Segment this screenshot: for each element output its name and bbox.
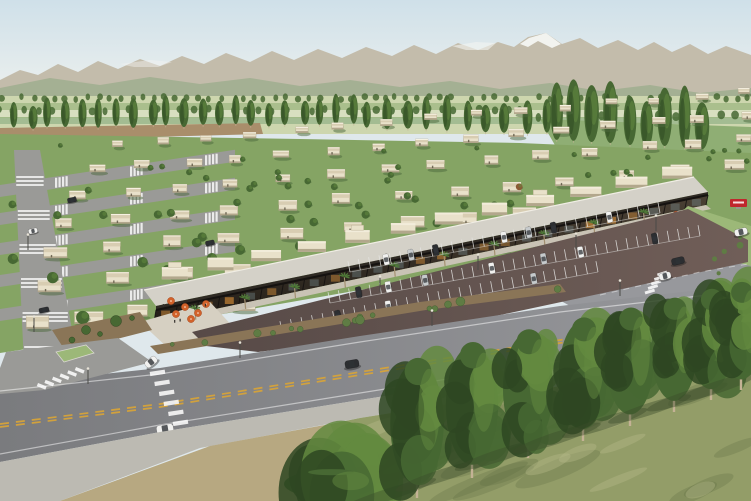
crosswalk-bar	[150, 372, 165, 374]
crosswalk-bar	[141, 289, 143, 299]
island-tree	[69, 337, 75, 343]
crosswalk-bar	[130, 291, 132, 301]
orchard-tree	[295, 96, 301, 103]
villa	[103, 242, 123, 256]
villa	[218, 233, 243, 246]
villa	[725, 160, 748, 173]
crosswalk-bar	[164, 402, 179, 404]
orange-umbrella	[172, 310, 179, 317]
villa	[126, 188, 143, 200]
crosswalk-bar	[62, 235, 64, 245]
villa	[223, 180, 240, 191]
orchard-tree	[119, 95, 124, 102]
orchard-tree	[536, 113, 541, 122]
villa	[451, 187, 471, 200]
orchard-tree	[714, 93, 721, 100]
crosswalk-bar	[212, 154, 214, 164]
orchard-tree	[672, 112, 680, 121]
lit-storefront	[225, 297, 234, 304]
villa	[173, 184, 190, 196]
crosswalk-bar	[205, 155, 207, 165]
orchard-tree	[469, 96, 474, 103]
crosswalk-bar	[18, 210, 50, 212]
crosswalk-bar	[19, 244, 55, 246]
crosswalk-bar	[18, 218, 50, 220]
villa	[44, 247, 70, 261]
crosswalk-bar	[55, 178, 57, 188]
orchard-tree	[252, 94, 257, 101]
crosswalk-bar	[205, 183, 207, 193]
crosswalk-bar	[66, 204, 68, 214]
orchard-tree	[32, 95, 37, 102]
crosswalk-bar	[137, 289, 139, 299]
crosswalk-bar	[216, 154, 218, 164]
orchard-tree	[492, 106, 498, 114]
scene-canvas	[0, 0, 751, 501]
orchard-tree	[481, 94, 486, 101]
crosswalk-bar	[66, 176, 68, 186]
retail-back-unit	[208, 258, 234, 271]
shrub	[456, 297, 465, 306]
orchard-tree	[723, 96, 728, 103]
retail-back-unit	[482, 203, 507, 216]
crosswalk-bar	[212, 212, 214, 222]
orchard-tree	[260, 96, 265, 103]
villa	[327, 169, 348, 181]
crosswalk-bar	[59, 177, 61, 187]
shrub	[202, 339, 208, 345]
orchard-tree	[172, 95, 178, 102]
shrub	[717, 271, 721, 275]
orchard-tree	[536, 93, 542, 100]
orchard-tree	[102, 107, 107, 115]
retail-back-unit	[251, 250, 281, 261]
shrub	[270, 330, 275, 335]
orange-umbrella	[167, 297, 174, 304]
crosswalk-bar	[209, 213, 211, 223]
villa	[279, 200, 300, 214]
crosswalk-bar	[216, 212, 218, 222]
orchard-tree	[731, 111, 739, 120]
orchard-tree	[219, 95, 224, 102]
villa	[90, 165, 108, 176]
orchard-tree	[73, 96, 77, 103]
villa	[163, 235, 183, 250]
villa	[736, 135, 751, 146]
shrub	[737, 242, 744, 249]
crosswalk-bar	[16, 176, 43, 178]
orchard-tree	[392, 93, 397, 100]
storefront-glass	[565, 226, 574, 233]
villa	[427, 160, 448, 172]
crosswalk-bar	[134, 224, 136, 234]
storefront-glass	[671, 203, 680, 210]
villa	[582, 148, 600, 160]
crosswalk-bar	[141, 223, 143, 233]
island-tree	[82, 326, 91, 335]
crosswalk-bar	[134, 256, 136, 266]
crosswalk-bar	[62, 177, 64, 187]
shrub	[254, 329, 262, 337]
orchard-tree	[372, 106, 380, 114]
villa	[463, 135, 481, 146]
shrub	[356, 316, 365, 325]
orchard-tree	[52, 96, 57, 103]
villa	[187, 159, 205, 170]
pedestrian	[180, 319, 181, 322]
orchard-tree	[504, 95, 510, 102]
crosswalk-bar	[137, 223, 139, 233]
villa	[106, 272, 132, 287]
crosswalk-bar	[66, 234, 68, 244]
crosswalk-bar	[209, 155, 211, 165]
villa	[685, 140, 704, 153]
villa	[281, 228, 307, 243]
retail-back-unit	[616, 177, 648, 188]
pedestrian	[163, 304, 164, 307]
orchard-tree	[283, 93, 288, 100]
villa	[553, 127, 572, 137]
orchard-tree	[310, 108, 315, 116]
crosswalk-bar	[16, 180, 43, 182]
crosswalk-bar	[59, 235, 61, 245]
orchard-tree	[206, 96, 211, 103]
crosswalk-bar	[168, 412, 183, 414]
villa	[55, 218, 74, 231]
orchard-tree	[195, 95, 201, 102]
island-tree	[111, 316, 122, 327]
crosswalk-bar	[209, 183, 211, 193]
crosswalk-bar	[216, 244, 218, 254]
crosswalk-bar	[62, 205, 64, 215]
island-tree	[98, 332, 103, 337]
retail-back-unit	[298, 241, 326, 252]
shrub	[712, 256, 717, 261]
orchard-tree	[307, 95, 311, 102]
villa	[273, 151, 292, 161]
crosswalk-bar	[159, 392, 174, 394]
shrub	[342, 319, 350, 327]
orchard-tree	[362, 93, 368, 100]
orchard-tree	[86, 93, 90, 100]
pedestrian	[205, 304, 206, 307]
orange-umbrella	[194, 309, 201, 316]
villa	[738, 88, 751, 97]
orchard-tree	[735, 96, 740, 103]
crosswalk-bar	[173, 422, 188, 424]
orchard-tree	[403, 94, 408, 101]
storefront-glass	[310, 279, 319, 286]
villa	[509, 129, 527, 140]
pedestrian	[196, 306, 197, 309]
shrub	[170, 342, 174, 346]
villa	[600, 121, 618, 132]
crosswalk-bar	[62, 267, 64, 277]
orchard-tree	[273, 94, 278, 101]
retail-back-unit	[435, 212, 463, 224]
aerial-rendering	[0, 0, 751, 501]
villa	[220, 205, 241, 218]
storefront-glass	[692, 199, 701, 206]
sign-base	[736, 207, 741, 209]
lit-storefront	[331, 275, 340, 282]
shrub	[554, 286, 561, 293]
sign-text-bar	[733, 202, 744, 204]
pedestrian	[174, 320, 175, 323]
orchard-tree	[717, 110, 725, 119]
orchard-tree	[414, 95, 419, 102]
crosswalk-bar	[134, 290, 136, 300]
retail-back-unit	[570, 187, 601, 197]
villa	[111, 214, 133, 227]
crosswalk-bar	[16, 184, 43, 186]
shrub	[722, 249, 727, 254]
shrub	[444, 301, 451, 308]
crosswalk-bar	[216, 182, 218, 192]
villa	[643, 141, 660, 153]
villa	[532, 150, 551, 163]
island-tree	[130, 316, 135, 321]
shrub	[289, 326, 294, 331]
orchard-tree	[413, 106, 420, 114]
shrub	[297, 326, 303, 332]
lit-storefront	[267, 288, 276, 295]
orchard-tree	[19, 93, 23, 100]
crosswalk-bar	[130, 167, 132, 177]
orchard-tree	[373, 94, 380, 101]
orchard-tree	[437, 94, 443, 101]
orchard-tree	[141, 94, 146, 101]
villa	[332, 193, 353, 207]
orange-umbrella	[181, 303, 188, 310]
crosswalk-bar	[66, 266, 68, 276]
orchard-tree	[255, 107, 261, 115]
orchard-tree	[107, 95, 112, 102]
crosswalk-bar	[205, 213, 207, 223]
orchard-tree	[21, 106, 26, 114]
orchard-tree	[241, 95, 246, 102]
crosswalk-bar	[155, 382, 170, 384]
shrub	[370, 313, 375, 318]
retail-back-unit	[662, 167, 692, 179]
orchard-tree	[191, 106, 198, 114]
crosswalk-bar	[212, 182, 214, 192]
villa	[26, 316, 51, 332]
retail-back-unit	[391, 223, 416, 233]
orchard-tree	[491, 93, 497, 100]
orchard-tree	[513, 96, 519, 103]
crosswalk-bar	[130, 257, 132, 267]
crosswalk-bar	[18, 214, 50, 216]
orange-umbrella	[187, 315, 194, 322]
